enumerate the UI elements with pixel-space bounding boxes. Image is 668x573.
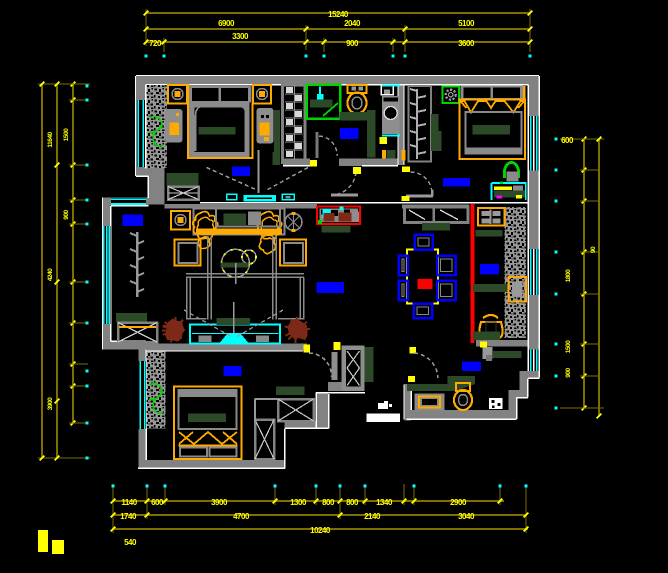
svg-text:11640: 11640 xyxy=(47,132,54,148)
svg-text:3600: 3600 xyxy=(458,39,475,48)
svg-text:800: 800 xyxy=(346,498,359,507)
svg-text:720: 720 xyxy=(149,39,162,48)
svg-text:2140: 2140 xyxy=(364,512,381,521)
svg-text:3900: 3900 xyxy=(47,397,54,410)
svg-text:900: 900 xyxy=(63,209,70,219)
svg-text:1500: 1500 xyxy=(63,128,70,141)
svg-text:5100: 5100 xyxy=(458,19,475,28)
svg-text:600: 600 xyxy=(151,498,164,507)
svg-text:600: 600 xyxy=(561,136,574,145)
svg-text:6900: 6900 xyxy=(218,19,235,28)
svg-text:90: 90 xyxy=(590,246,597,253)
svg-text:1140: 1140 xyxy=(121,498,137,507)
svg-text:800: 800 xyxy=(322,498,335,507)
svg-text:1340: 1340 xyxy=(376,498,393,507)
svg-text:3040: 3040 xyxy=(458,512,475,521)
svg-text:1740: 1740 xyxy=(120,512,137,521)
svg-text:900: 900 xyxy=(346,39,359,48)
svg-text:10240: 10240 xyxy=(310,526,331,535)
svg-text:15240: 15240 xyxy=(328,10,349,19)
svg-text:1300: 1300 xyxy=(290,498,307,507)
svg-text:3300: 3300 xyxy=(232,32,249,41)
svg-text:900: 900 xyxy=(565,367,572,377)
svg-text:4240: 4240 xyxy=(47,268,54,281)
svg-text:4700: 4700 xyxy=(233,512,250,521)
svg-text:2040: 2040 xyxy=(344,19,361,28)
svg-text:3900: 3900 xyxy=(211,498,228,507)
svg-text:2900: 2900 xyxy=(450,498,467,507)
svg-text:1800: 1800 xyxy=(565,269,572,282)
svg-text:540: 540 xyxy=(124,538,137,547)
svg-text:1500: 1500 xyxy=(565,340,572,353)
